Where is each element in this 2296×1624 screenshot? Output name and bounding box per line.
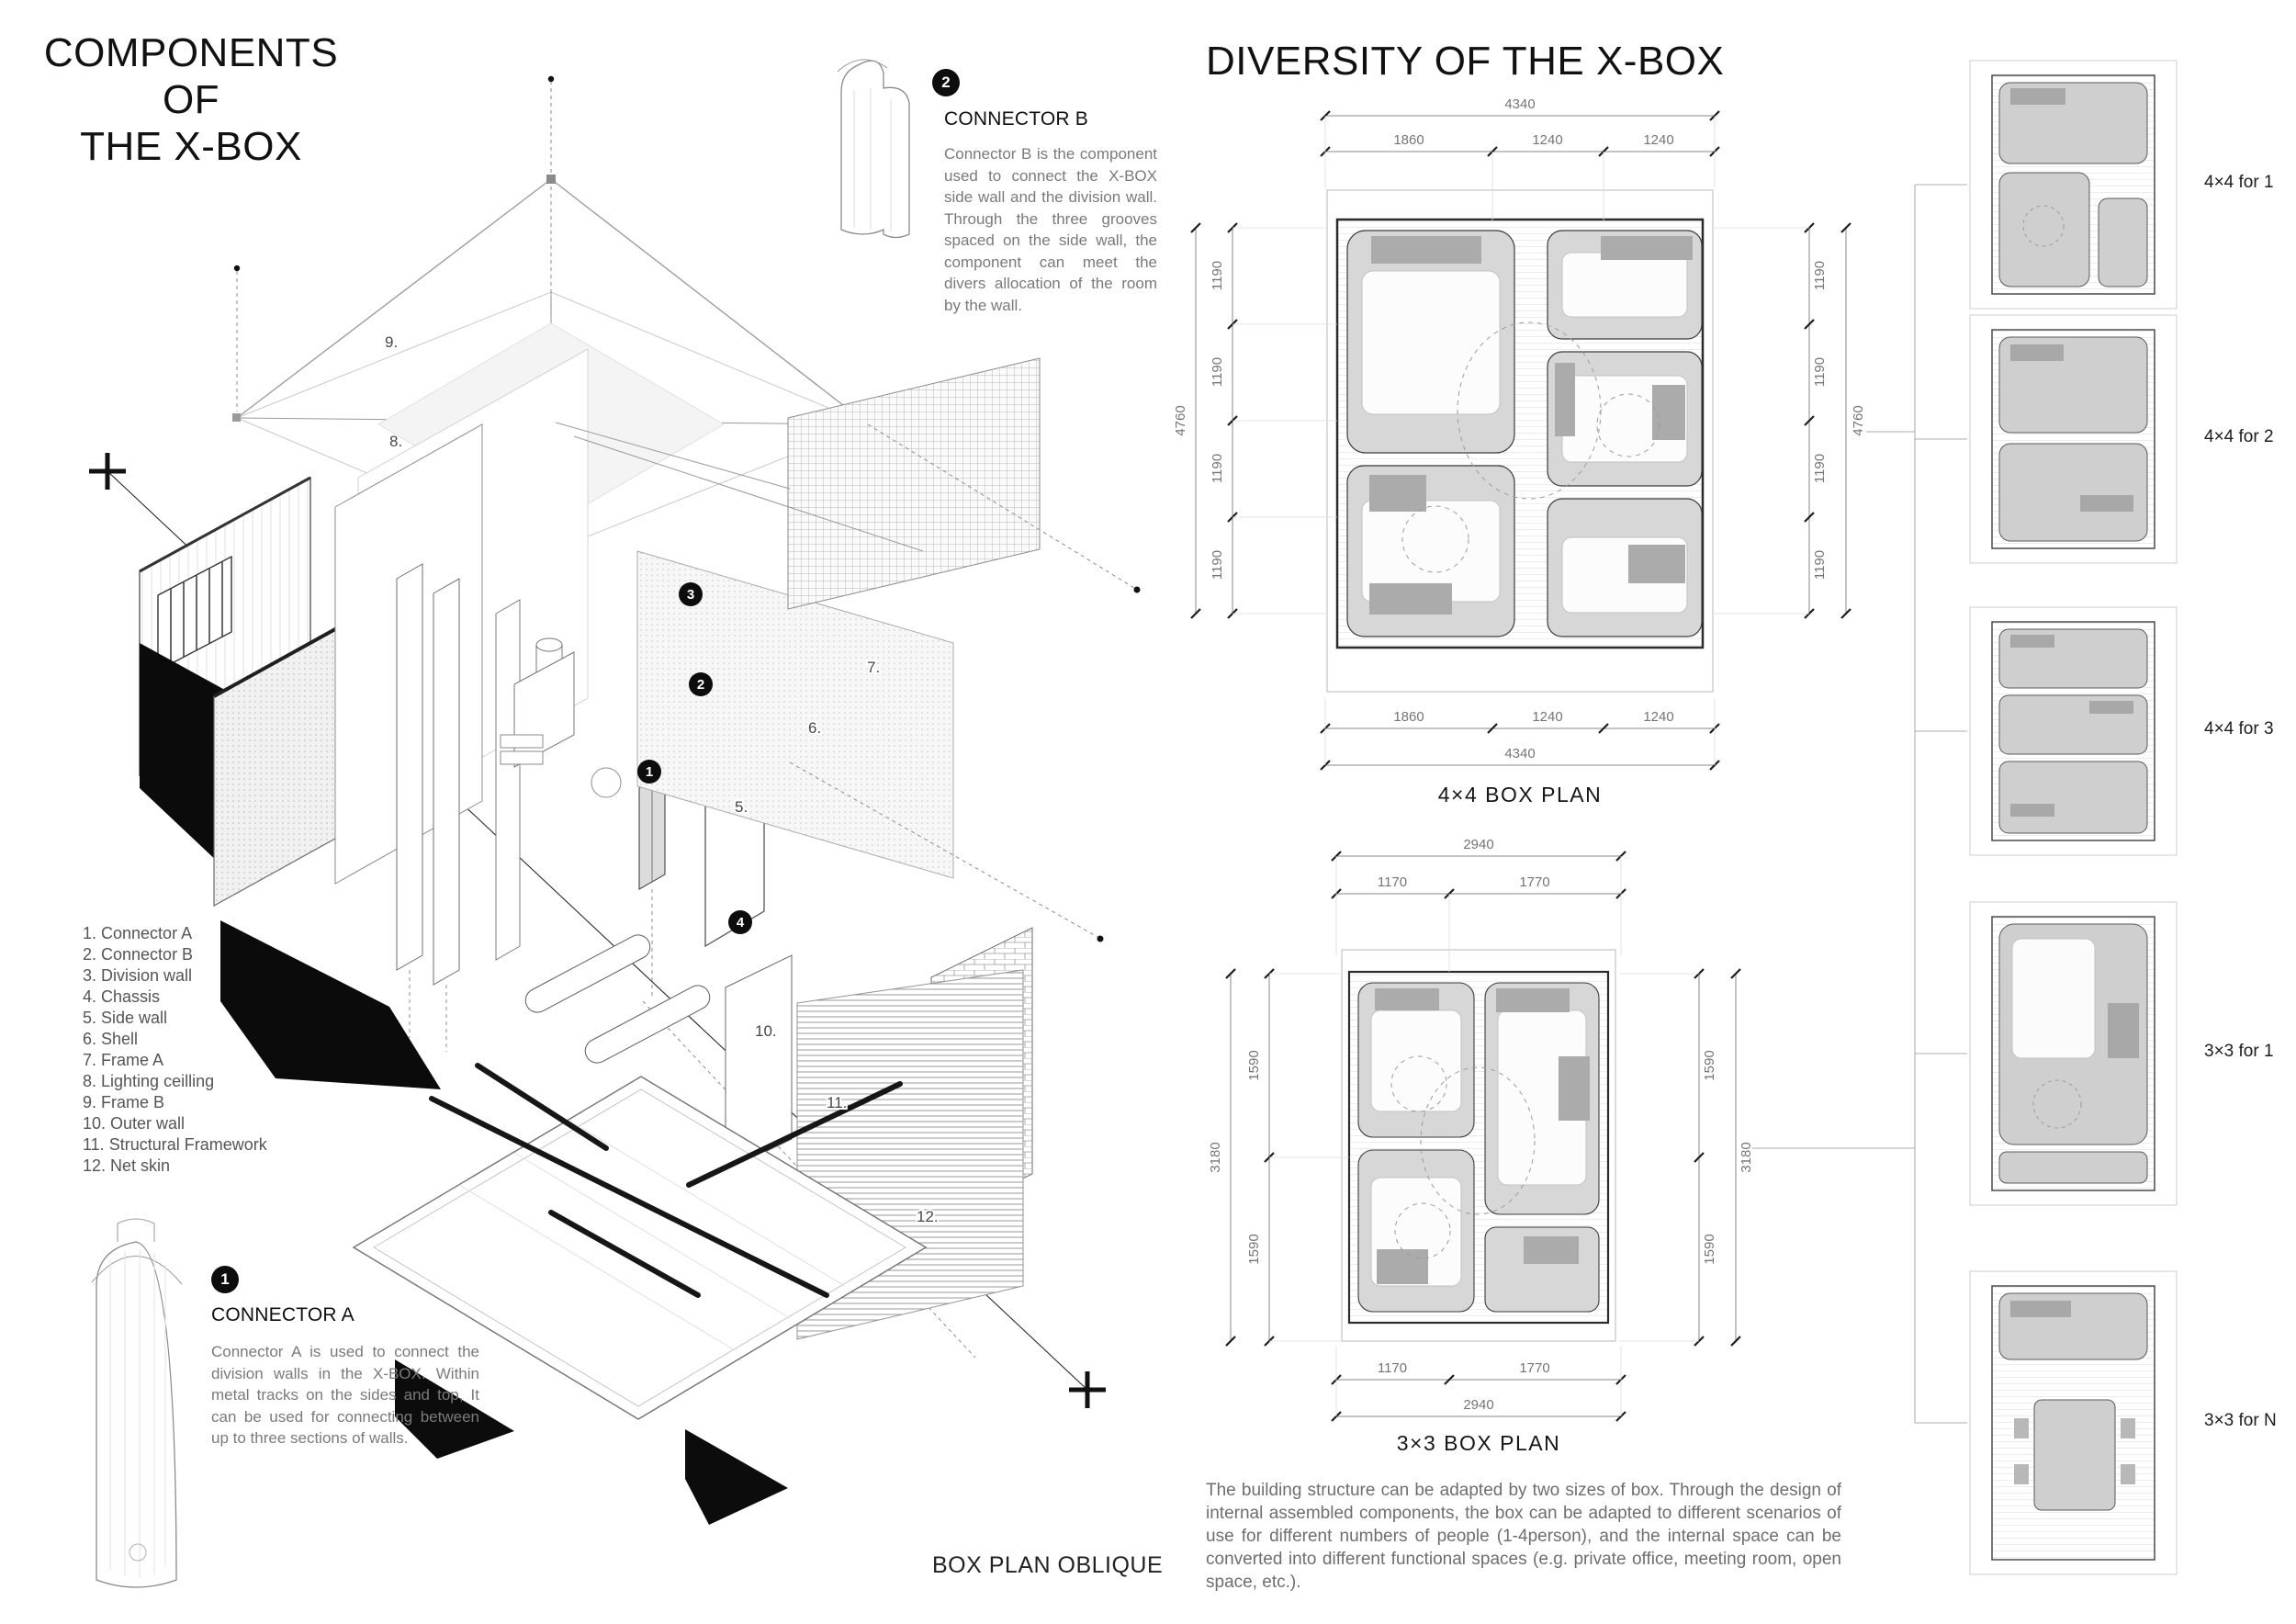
presentation-board: 1 2 3 4 5. 6. 7. 8. 9. 10. 11. 12.: [0, 0, 2296, 1624]
callout-9: 9.: [385, 333, 398, 351]
page-title-components: COMPONENTS OF THE X-BOX: [35, 29, 347, 170]
dim-4x4-bottom-1: 1860: [1393, 709, 1424, 725]
dim-4x4-left-3: 1190: [1210, 454, 1225, 483]
connector-b-profile: [838, 60, 909, 238]
dim-4x4-total-height-left: 4760: [1173, 405, 1188, 435]
connector-a-description: Connector A is used to connect the divis…: [211, 1341, 479, 1449]
badge-2-number: 2: [697, 677, 704, 693]
plan-3x3-drawing: [1342, 950, 1615, 1341]
callout-5: 5.: [735, 798, 748, 816]
diversity-description: The building structure can be adapted by…: [1206, 1479, 1841, 1594]
title-line-1: COMPONENTS OF: [35, 29, 347, 123]
callout-8: 8.: [389, 433, 402, 450]
dim-3x3-left-2: 1590: [1246, 1234, 1262, 1264]
variant-label-3x3-for-n: 3×3 for N: [2204, 1411, 2277, 1431]
badge-1-number: 1: [646, 764, 653, 780]
dim-4x4-top-1: 1860: [1393, 132, 1424, 148]
connector-a-piece: [639, 773, 665, 997]
variant-label-3x3-for-1: 3×3 for 1: [2204, 1042, 2274, 1062]
dim-4x4-bottom-3: 1240: [1643, 709, 1673, 725]
dim-4x4-top-2: 1240: [1532, 132, 1562, 148]
parts-list-item: 1. Connector A: [83, 923, 267, 944]
dim-4x4-left-2: 1190: [1210, 357, 1225, 387]
variant-thumb-4x4-for-1: [1970, 61, 2177, 309]
dim-4x4-right-2: 1190: [1812, 357, 1828, 387]
connector-a-profile: [92, 1219, 182, 1587]
dim-4x4-right-3: 1190: [1812, 454, 1828, 483]
dim-3x3-left-1: 1590: [1246, 1050, 1262, 1080]
plus-marker-bottom: [1069, 1371, 1106, 1408]
connector-b-badge: 2: [932, 69, 960, 96]
variant-label-4x4-for-2: 4×4 for 2: [2204, 427, 2274, 447]
parts-list-item: 2. Connector B: [83, 944, 267, 965]
callout-10: 10.: [755, 1022, 777, 1040]
parts-list-item: 6. Shell: [83, 1029, 267, 1050]
dim-3x3-right-2: 1590: [1702, 1234, 1717, 1264]
dim-4x4-total-height-right: 4760: [1851, 405, 1866, 435]
dim-4x4-right-1: 1190: [1812, 261, 1828, 290]
dim-4x4-total-width-bottom: 4340: [1504, 746, 1535, 761]
parts-list-item: 10. Outer wall: [83, 1113, 267, 1134]
variant-label-4x4-for-1: 4×4 for 1: [2204, 173, 2274, 193]
connector-b-badge-number: 2: [941, 73, 950, 92]
dim-4x4-left-4: 1190: [1210, 550, 1225, 580]
variant-label-4x4-for-3: 4×4 for 3: [2204, 719, 2274, 739]
connector-a-badge-number: 1: [220, 1270, 229, 1289]
variant-thumb-4x4-for-2: [1970, 315, 2177, 563]
callout-badge-4: 4: [728, 910, 752, 934]
page-title-diversity: DIVERSITY OF THE X-BOX: [1206, 39, 1724, 85]
dim-3x3-total-height-right: 3180: [1739, 1142, 1754, 1172]
dim-3x3-bottom-2: 1770: [1519, 1360, 1549, 1376]
plus-marker-top: [89, 453, 126, 490]
dim-3x3-top-1: 1170: [1378, 874, 1407, 890]
dim-3x3-total-width-bottom: 2940: [1463, 1397, 1493, 1413]
parts-list-item: 8. Lighting ceilling: [83, 1071, 267, 1092]
callout-badge-3: 3: [679, 582, 703, 606]
dim-4x4-bottom-2: 1240: [1532, 709, 1562, 725]
variant-thumb-3x3-for-1: [1970, 902, 2177, 1205]
dim-3x3-total-width-top: 2940: [1463, 837, 1493, 852]
title-line-2: THE X-BOX: [35, 123, 347, 170]
plan-3x3-caption: 3×3 BOX PLAN: [1295, 1431, 1662, 1456]
dim-4x4-total-width-top: 4340: [1504, 96, 1535, 112]
shadow-wedge-2: [685, 1429, 788, 1525]
parts-list-item: 3. Division wall: [83, 965, 267, 987]
dim-3x3-right-1: 1590: [1702, 1050, 1717, 1080]
variant-bracket-lines: [1752, 185, 1967, 1423]
plan-4x4-drawing: [1327, 190, 1713, 692]
dim-4x4-right-4: 1190: [1812, 550, 1828, 580]
badge-3-number: 3: [687, 587, 694, 603]
callout-7: 7.: [867, 659, 880, 676]
parts-list-item: 4. Chassis: [83, 987, 267, 1008]
oblique-caption: BOX PLAN OBLIQUE: [932, 1552, 1163, 1579]
connector-a-heading: CONNECTOR A: [211, 1304, 355, 1326]
plan-4x4-caption: 4×4 BOX PLAN: [1336, 783, 1704, 807]
variant-thumb-3x3-for-n: [1970, 1271, 2177, 1574]
parts-list-item: 7. Frame A: [83, 1050, 267, 1071]
dim-4x4-top-3: 1240: [1643, 132, 1673, 148]
callout-12: 12.: [917, 1208, 939, 1225]
callout-badge-1: 1: [637, 760, 661, 784]
dim-4x4-left-1: 1190: [1210, 261, 1225, 290]
dim-3x3-top-2: 1770: [1519, 874, 1549, 890]
parts-list-item: 12. Net skin: [83, 1156, 267, 1177]
callout-11: 11.: [827, 1094, 847, 1111]
badge-4-number: 4: [737, 915, 745, 930]
variant-thumb-4x4-for-3: [1970, 607, 2177, 855]
connector-a-badge: 1: [211, 1266, 239, 1293]
dim-3x3-total-height-left: 3180: [1208, 1142, 1223, 1172]
parts-list-item: 5. Side wall: [83, 1008, 267, 1029]
callout-badge-2: 2: [689, 672, 713, 696]
callout-6: 6.: [808, 719, 821, 737]
connector-b-heading: CONNECTOR B: [944, 108, 1088, 130]
parts-list-item: 11. Structural Framework: [83, 1134, 267, 1156]
dim-3x3-bottom-1: 1170: [1378, 1360, 1407, 1376]
interior-cluster: [335, 349, 621, 1052]
parts-list: 1. Connector A 2. Connector B 3. Divisio…: [83, 923, 267, 1177]
parts-list-item: 9. Frame B: [83, 1092, 267, 1113]
connector-b-description: Connector B is the component used to con…: [944, 143, 1157, 316]
